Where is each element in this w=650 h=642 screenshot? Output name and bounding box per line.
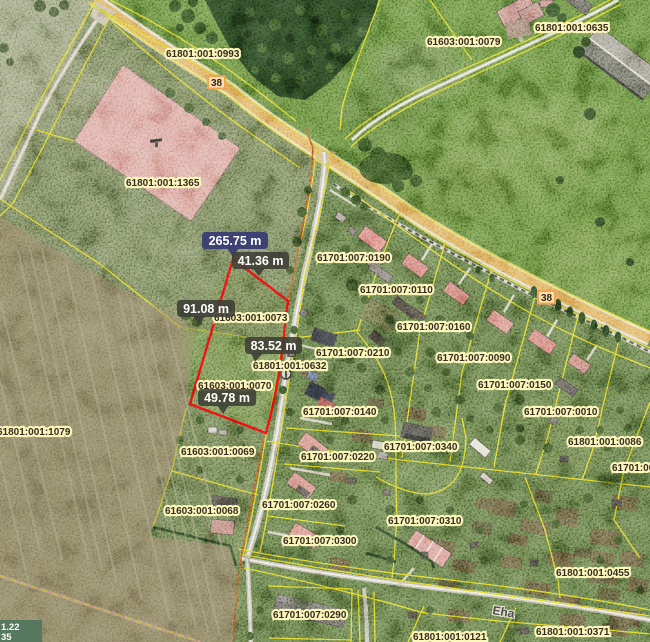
svg-text:61701:007:0010: 61701:007:0010 [524,407,598,418]
svg-text:49.78 m: 49.78 m [204,391,250,405]
svg-text:61701:007:0340: 61701:007:0340 [384,442,458,453]
svg-text:61701:007:0290: 61701:007:0290 [273,610,347,621]
svg-text:61701:007:0210: 61701:007:0210 [316,348,390,359]
svg-text:61801:001:0455: 61801:001:0455 [556,568,630,579]
svg-text:61701:007:0220: 61701:007:0220 [301,452,375,463]
svg-text:61801:001:0371: 61801:001:0371 [536,627,610,638]
svg-text:61701:007:0140: 61701:007:0140 [303,407,377,418]
svg-text:83.52 m: 83.52 m [251,339,297,353]
svg-text:61801:001:1365: 61801:001:1365 [126,178,200,189]
svg-text:61801:001:0121: 61801:001:0121 [413,632,487,642]
svg-text:91.08 m: 91.08 m [183,302,229,316]
svg-text:61801:001:0635: 61801:001:0635 [535,23,609,34]
svg-text:61701:007:0310: 61701:007:0310 [388,516,462,527]
svg-text:61603:001:0079: 61603:001:0079 [427,37,501,48]
svg-text:61701:007:0190: 61701:007:0190 [317,253,391,264]
svg-text:61701:007:0110: 61701:007:0110 [360,285,433,296]
svg-text:38: 38 [541,293,553,304]
svg-text:61701:007:0150: 61701:007:0150 [478,380,552,391]
svg-text:61801:001:0993: 61801:001:0993 [166,49,240,60]
svg-text:61701:007:0160: 61701:007:0160 [397,322,471,333]
svg-text:61603:001:0069: 61603:001:0069 [181,447,255,458]
svg-text:61801:001:0632: 61801:001:0632 [253,361,327,372]
svg-text:61701:007:0260: 61701:007:0260 [262,500,336,511]
svg-text:61603:001:0068: 61603:001:0068 [165,506,239,517]
svg-text:41.36 m: 41.36 m [238,254,284,268]
svg-text:265.75 m: 265.75 m [209,234,262,248]
svg-text:61801:001:1079: 61801:001:1079 [0,427,71,438]
svg-text:35: 35 [1,632,12,642]
svg-text:61801:001:0086: 61801:001:0086 [568,437,642,448]
svg-text:61701:00: 61701:00 [612,463,650,474]
svg-text:38: 38 [211,78,223,89]
svg-text:61701:007:0090: 61701:007:0090 [437,353,511,364]
svg-text:61701:007:0300: 61701:007:0300 [283,536,357,547]
